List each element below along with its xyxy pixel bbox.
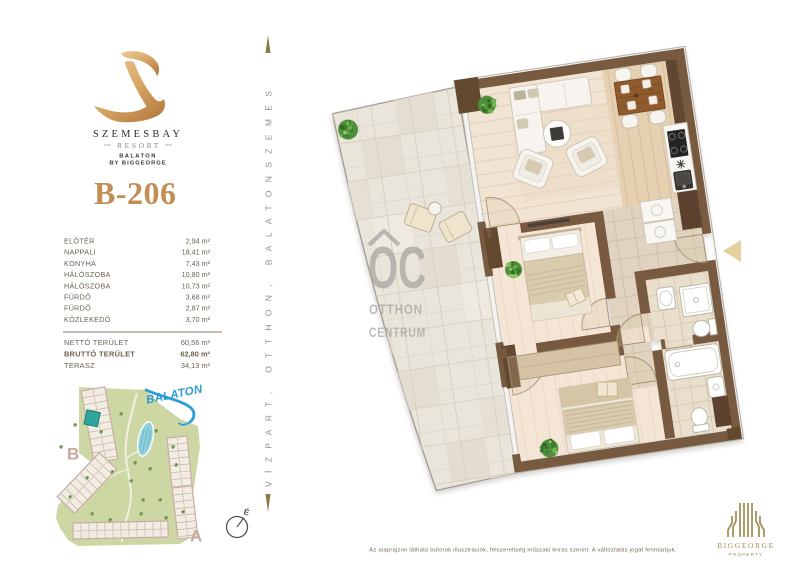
svg-text:34,13 m²: 34,13 m² xyxy=(181,361,211,370)
svg-text:Az alaprajzon látható bútorok: Az alaprajzon látható bútorok illusztrác… xyxy=(369,548,677,554)
svg-text:OC: OC xyxy=(368,235,426,301)
svg-text:2,94 m²: 2,94 m² xyxy=(186,237,211,246)
svg-text:BY BIGGEORGE: BY BIGGEORGE xyxy=(109,161,166,167)
svg-text:NETTÓ TERÜLET: NETTÓ TERÜLET xyxy=(64,338,129,347)
svg-text:SZEMESBAY: SZEMESBAY xyxy=(93,129,183,140)
svg-text:BRUTTÓ TERÜLET: BRUTTÓ TERÜLET xyxy=(64,350,135,359)
svg-text:RESORT: RESORT xyxy=(117,141,161,150)
svg-text:62,80 m²: 62,80 m² xyxy=(180,350,210,359)
svg-text:60,56 m²: 60,56 m² xyxy=(181,338,211,347)
svg-text:2,87 m²: 2,87 m² xyxy=(186,304,211,313)
svg-text:HÁLÓSZOBA: HÁLÓSZOBA xyxy=(64,270,111,279)
svg-text:HÁLÓSZOBA: HÁLÓSZOBA xyxy=(64,281,111,290)
svg-text:CENTRUM: CENTRUM xyxy=(369,325,426,340)
svg-text:OTTHON: OTTHON xyxy=(369,302,423,317)
svg-text:10,80 m²: 10,80 m² xyxy=(182,270,211,279)
svg-text:BALATON: BALATON xyxy=(145,383,204,406)
svg-text:10,73 m²: 10,73 m² xyxy=(182,281,211,290)
svg-text:3,68 m²: 3,68 m² xyxy=(186,293,211,302)
svg-text:KÖZLEKEDŐ: KÖZLEKEDŐ xyxy=(64,315,111,324)
svg-text:7,43 m²: 7,43 m² xyxy=(186,259,211,268)
svg-text:FÜRDŐ: FÜRDŐ xyxy=(64,304,91,313)
svg-text:NAPPALI: NAPPALI xyxy=(64,248,96,257)
svg-text:PROPERTY: PROPERTY xyxy=(729,552,763,557)
svg-text:VÍZPART, OTTHON, BALATONSZEMES: VÍZPART, OTTHON, BALATONSZEMES xyxy=(264,91,274,487)
svg-text:18,41 m²: 18,41 m² xyxy=(182,248,211,257)
svg-text:FÜRDŐ: FÜRDŐ xyxy=(64,293,91,302)
svg-text:KONYHA: KONYHA xyxy=(64,259,96,268)
svg-text:TERASZ: TERASZ xyxy=(64,361,95,370)
svg-text:BIGGEORGE: BIGGEORGE xyxy=(717,541,775,550)
svg-text:A: A xyxy=(190,527,202,546)
svg-text:B: B xyxy=(67,445,79,464)
svg-text:B-206: B-206 xyxy=(94,175,177,211)
svg-text:ELŐTÉR: ELŐTÉR xyxy=(64,237,95,246)
svg-text:É: É xyxy=(242,507,250,517)
svg-text:BALATON: BALATON xyxy=(119,154,157,160)
svg-text:3,70 m²: 3,70 m² xyxy=(186,315,211,324)
